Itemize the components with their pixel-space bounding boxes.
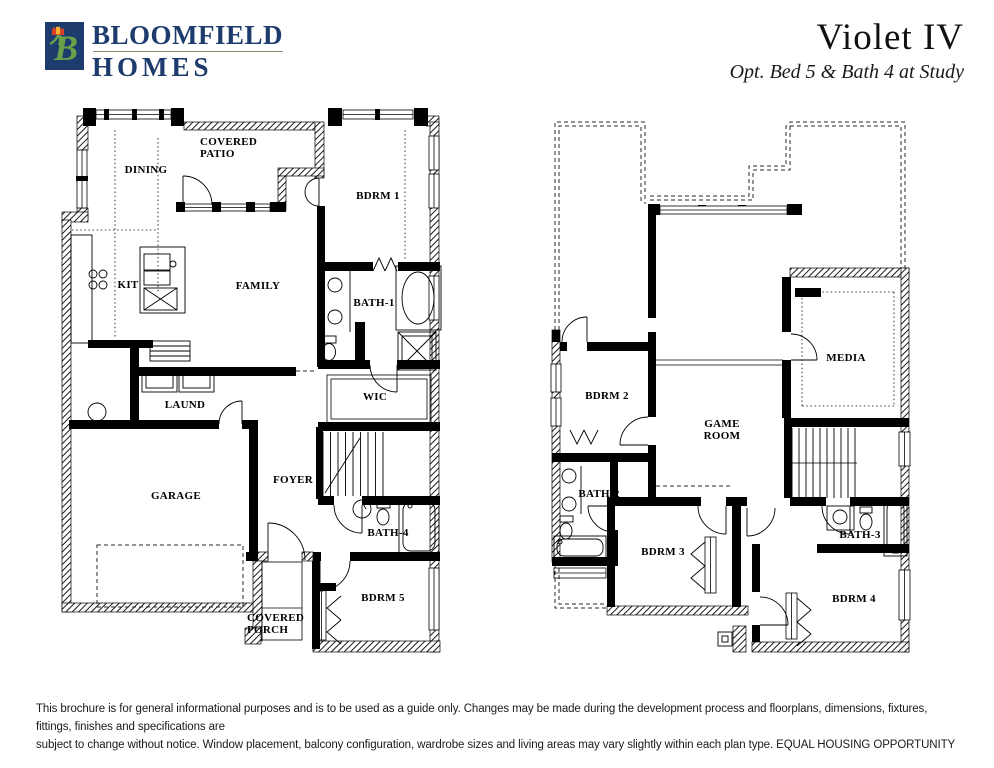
- brand-text: BLOOMFIELD HOMES: [92, 22, 283, 81]
- sink-icon: [562, 497, 576, 511]
- bloomfield-b-tulip-logo-icon: B: [45, 22, 84, 70]
- room-label-bdrm5: BDRM 5: [361, 592, 405, 604]
- media-tray-ceiling: [802, 292, 894, 406]
- sink-icon: [144, 254, 170, 270]
- brochure-page: B BLOOMFIELD HOMES Violet IV Opt. Bed 5 …: [0, 0, 994, 768]
- room-label-bdrm3: BDRM 3: [641, 546, 685, 558]
- room-label-covered-porch: COVERED PORCH: [247, 612, 313, 636]
- laundry-fixtures: [88, 370, 214, 421]
- sink-icon: [833, 510, 847, 524]
- room-label-bath4: BATH-4: [367, 527, 408, 539]
- title-block: Violet IV Opt. Bed 5 & Bath 4 at Study: [730, 16, 964, 84]
- bloomfield-logo: B BLOOMFIELD HOMES: [45, 22, 283, 81]
- room-label-family: FAMILY: [236, 280, 281, 292]
- staircase: [323, 432, 383, 496]
- plan-subtitle: Opt. Bed 5 & Bath 4 at Study: [730, 61, 964, 84]
- sink-icon: [562, 469, 576, 483]
- room-label-foyer: FOYER: [273, 474, 313, 486]
- sink-icon: [328, 310, 342, 324]
- toilet-icon: [860, 507, 872, 513]
- room-label-wic: WIC: [363, 391, 387, 403]
- disclaimer-line1: This brochure is for general information…: [36, 700, 964, 736]
- doors: [183, 176, 397, 644]
- room-label-bath3: BATH-3: [839, 529, 880, 541]
- doors: [562, 317, 850, 646]
- room-label-media: MEDIA: [826, 352, 865, 364]
- room-label-bdrm4: BDRM 4: [832, 593, 876, 605]
- attic-access: [718, 632, 732, 646]
- room-label-kit: KIT: [117, 279, 138, 291]
- room-label-game-room: GAME ROOM: [699, 418, 745, 442]
- plan-title: Violet IV: [730, 16, 964, 59]
- sink-icon: [328, 278, 342, 292]
- second-floor-plan: BDRM 2 GAME ROOM MEDIA BATH-2 BDRM 3 BAT…: [540, 112, 915, 668]
- toilet-icon: [560, 516, 573, 522]
- room-label-bdrm1: BDRM 1: [356, 190, 400, 202]
- room-label-covered-patio: COVERED PATIO: [200, 136, 264, 160]
- disclaimer-line2: subject to change without notice. Window…: [36, 736, 964, 754]
- garage-door-dashed: [97, 371, 316, 607]
- kitchen-island: [140, 247, 185, 313]
- brand-line1: BLOOMFIELD: [92, 22, 283, 49]
- brand-line2: HOMES: [92, 54, 283, 81]
- room-label-bdrm2: BDRM 2: [585, 390, 629, 402]
- room-label-bath1: BATH-1: [353, 297, 394, 309]
- room-label-garage: GARAGE: [151, 490, 201, 502]
- utility-sink-icon: [88, 403, 106, 421]
- bath1-fixtures: [322, 266, 441, 370]
- stove-icon: [89, 270, 97, 278]
- room-label-bath2: BATH-2: [578, 488, 619, 500]
- room-label-laund: LAUND: [165, 399, 206, 411]
- first-floor-plan: DINING COVERED PATIO BDRM 1 KIT FAMILY B…: [60, 108, 445, 664]
- disclaimer: This brochure is for general information…: [36, 700, 964, 754]
- bath2-fixtures: [554, 466, 606, 559]
- room-label-dining: DINING: [125, 164, 168, 176]
